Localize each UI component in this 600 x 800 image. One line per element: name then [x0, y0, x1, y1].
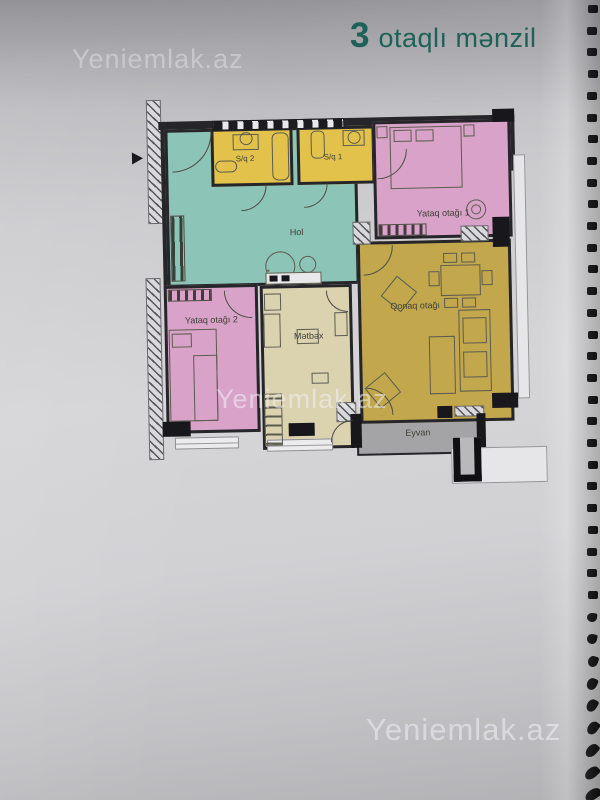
label-balcony: Eyvan [395, 427, 441, 438]
pillar-right-mid [492, 217, 510, 247]
watermark-middle: Yeniemlak.az [216, 384, 388, 415]
page-title: 3 otaqlı mənzil [350, 16, 537, 56]
room-count: 3 [350, 16, 369, 56]
stove-symbol [264, 293, 281, 310]
blanket-symbol [193, 355, 218, 421]
fridge-symbol [334, 312, 347, 336]
wall-hatch-left-bottom [146, 278, 165, 460]
pillar-bottom-left [163, 421, 191, 437]
chair-symbol [461, 252, 475, 262]
wall-hatch-bed1-living [460, 225, 488, 242]
pillow-symbol [172, 333, 192, 347]
pillar-balcony-mid [437, 406, 452, 418]
wall-hatch-hall-living [352, 222, 370, 245]
nightstand-symbol [376, 126, 387, 138]
window-bay-right [513, 154, 530, 398]
tv-unit-shelf [463, 351, 488, 377]
chair-symbol [481, 270, 492, 285]
watermark-top-left: Yeniemlak.az [72, 44, 244, 75]
pillar-top-right [492, 109, 514, 122]
pillow-symbol [393, 130, 411, 142]
label-kitchen: Mətbəx [287, 330, 331, 341]
chair-symbol [443, 253, 457, 263]
label-bath-1: S/q 1 [313, 152, 353, 162]
counter-symbol [263, 313, 281, 347]
hall-shaft-symbol [170, 215, 185, 281]
label-bath-2: S/q 2 [225, 154, 265, 164]
label-hall: Hol [276, 227, 316, 238]
floor-plan: Hol S/q 2 S/q 1 Yataq otağı 1 Qonaq otağ… [144, 96, 554, 504]
pillar-right-bottom [492, 392, 518, 408]
sofa-symbol [429, 336, 456, 395]
label-living: Qonaq otağı [370, 300, 460, 312]
dining-table-symbol [440, 264, 481, 296]
balcony-wall-u [453, 437, 482, 482]
nightstand-symbol [463, 124, 474, 136]
wardrobe-symbol [168, 289, 212, 302]
hall-cabinet-detail [281, 275, 289, 281]
chair-symbol [462, 297, 476, 307]
wardrobe-symbol [378, 223, 426, 236]
window-bedroom-2 [175, 436, 239, 449]
page-title-text: otaqlı mənzil [378, 23, 536, 54]
bathtub-symbol [271, 132, 289, 180]
page-edge-shadow [540, 0, 600, 800]
kitchen-unit-symbol [312, 372, 329, 383]
tv-unit-shelf [462, 317, 487, 343]
label-bedroom-1: Yataq otağı 1 [398, 207, 488, 219]
label-bedroom-2: Yataq otağı 2 [168, 314, 254, 326]
hall-cabinet-detail [269, 275, 277, 281]
pillar-bottom-center [289, 423, 315, 437]
pillow-symbol [415, 129, 433, 141]
catalog-photo: Yeniemlak.az Yeniemlak.az Yeniemlak.az 3… [0, 0, 600, 800]
spacer [267, 270, 269, 272]
entrance-arrow-icon [132, 152, 143, 164]
watermark-bottom-right: Yeniemlak.az [366, 712, 561, 748]
chair-symbol [428, 271, 439, 286]
